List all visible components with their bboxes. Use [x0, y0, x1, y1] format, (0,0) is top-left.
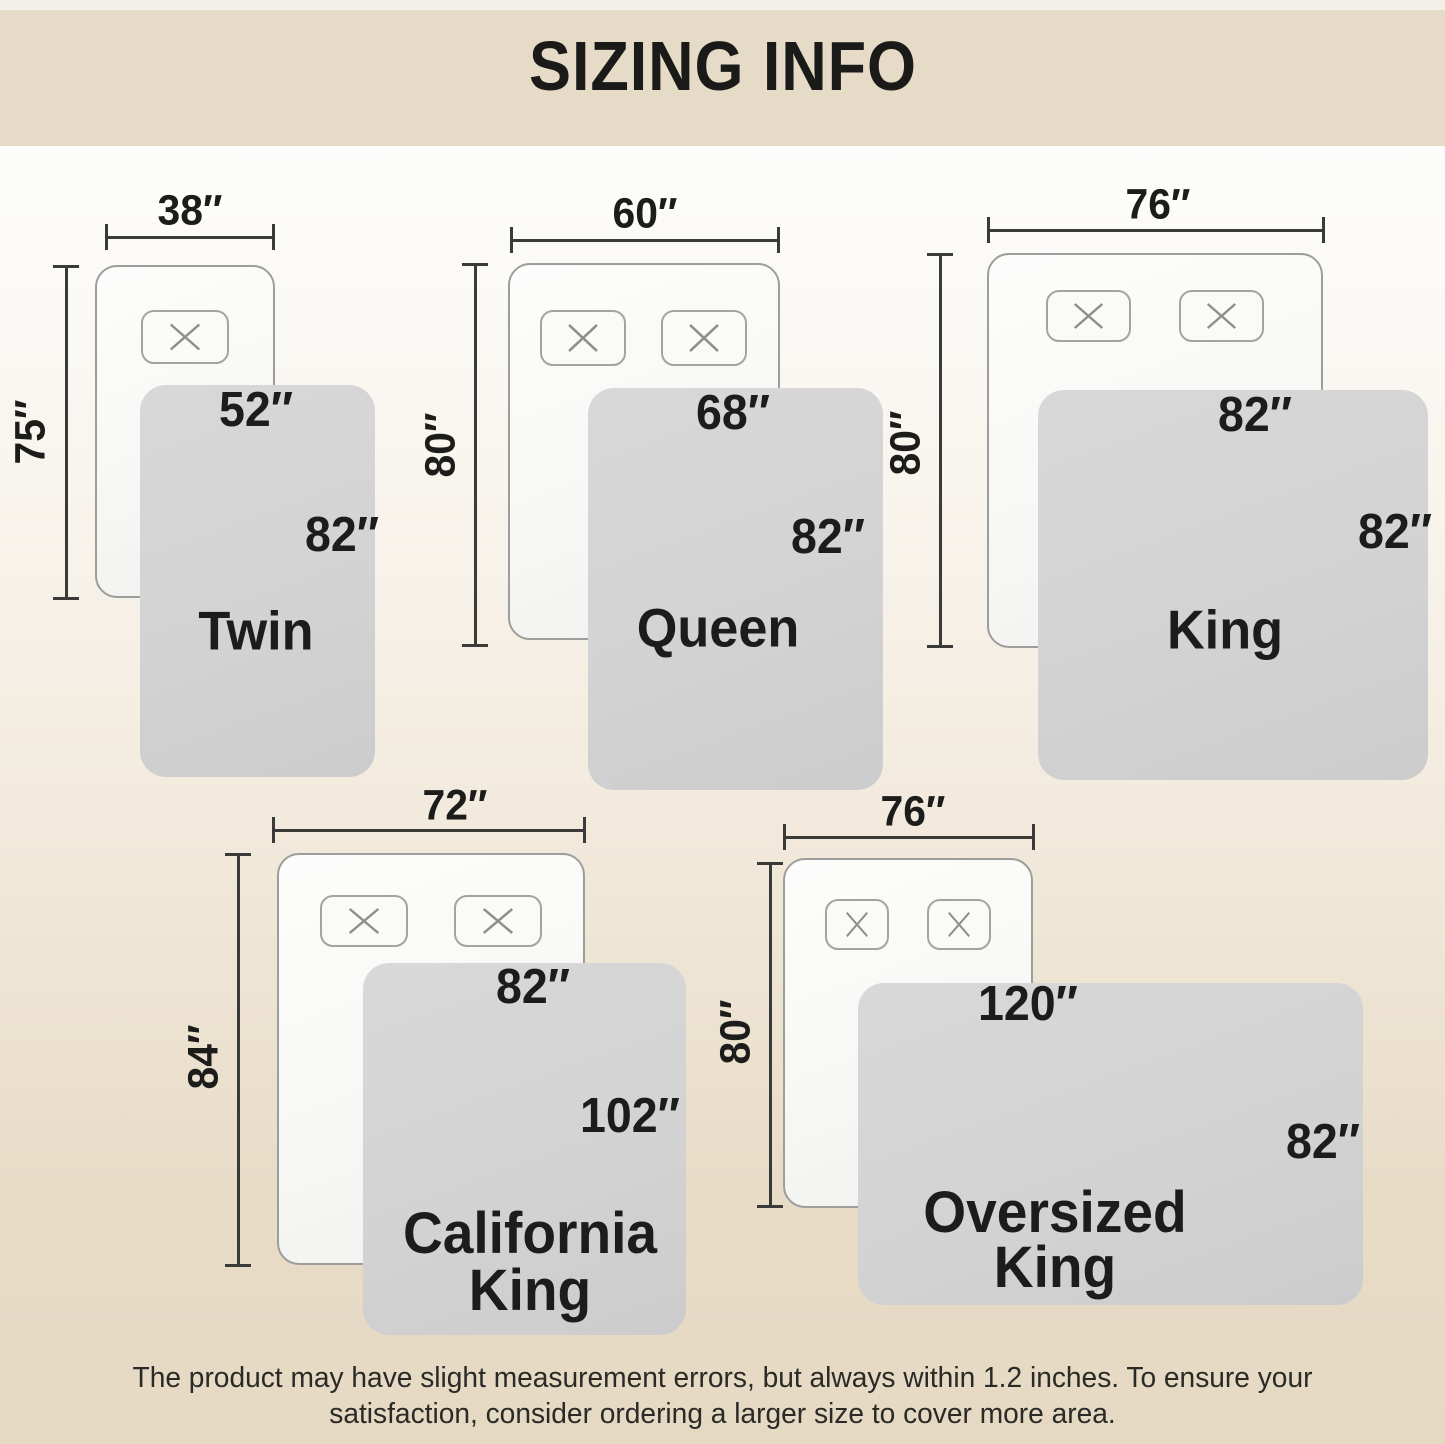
bed-width-dimension-line [987, 217, 1325, 243]
bed-width-dimension-line [510, 227, 780, 253]
pillow-cross-icon [827, 901, 887, 948]
bed-length-dimension-line [757, 862, 783, 1208]
bed-length-label: 75″ [7, 399, 56, 464]
pillow-cross-icon [456, 897, 540, 945]
sizing-infographic: SIZING INFO 52″82″Twin38″75″68″82″Queen6… [0, 0, 1445, 1444]
bed-length-label: 80″ [882, 410, 931, 475]
pillow-cross-icon [143, 312, 227, 362]
bed-width-dimension-line [105, 224, 275, 250]
blanket-length-label: 82″ [1286, 1114, 1360, 1170]
blanket-width-label: 52″ [219, 382, 293, 438]
size-name-label: King [1102, 603, 1349, 658]
pillow-icon [454, 895, 542, 947]
bed-outline [277, 853, 585, 1265]
blanket-shape [1038, 390, 1428, 780]
pillow-icon [320, 895, 408, 947]
blanket-width-label: 120″ [978, 976, 1078, 1032]
bed-width-label: 38″ [157, 187, 222, 236]
size-name-label: Queen [585, 601, 851, 656]
pillow-icon [825, 899, 889, 950]
footer-note: The product may have slight measurement … [0, 1360, 1445, 1432]
bed-width-dimension-line [783, 824, 1035, 850]
diagram-king: 82″82″King76″80″ [0, 0, 1445, 1444]
footer-line-1: The product may have slight measurement … [22, 1360, 1424, 1396]
blanket-length-label: 82″ [305, 507, 379, 563]
bed-length-dimension-line [462, 263, 488, 647]
blanket-shape [363, 963, 686, 1335]
blanket-width-label: 82″ [496, 959, 570, 1015]
pillow-cross-icon [1181, 292, 1262, 340]
pillow-icon [1179, 290, 1264, 342]
bed-outline [95, 265, 275, 598]
bed-width-label: 76″ [880, 788, 945, 837]
bed-length-dimension-line [53, 265, 79, 600]
bed-outline [987, 253, 1323, 648]
pillow-icon [540, 310, 626, 366]
bed-length-dimension-line [927, 253, 953, 648]
blanket-length-label: 82″ [791, 509, 865, 565]
blanket-shape [140, 385, 375, 777]
size-name-label: California King [359, 1205, 701, 1319]
bed-width-label: 72″ [422, 782, 487, 831]
blanket-shape [858, 983, 1363, 1305]
pillow-cross-icon [1048, 292, 1129, 340]
pillow-cross-icon [663, 312, 745, 364]
bed-width-label: 76″ [1125, 181, 1190, 230]
bed-length-label: 80″ [417, 412, 466, 477]
blanket-width-label: 82″ [1218, 387, 1292, 443]
blanket-length-label: 82″ [1358, 504, 1432, 560]
pillow-cross-icon [542, 312, 624, 364]
diagram-oversized-king: 120″82″Oversized King76″80″ [0, 0, 1445, 1444]
diagram-queen: 68″82″Queen60″80″ [0, 0, 1445, 1444]
bed-outline [783, 858, 1033, 1208]
pillow-cross-icon [322, 897, 406, 945]
pillow-icon [927, 899, 991, 950]
bed-length-dimension-line [225, 853, 251, 1267]
bed-width-dimension-line [272, 817, 586, 843]
bed-outline [508, 263, 780, 640]
blanket-shape [588, 388, 883, 790]
size-name-label: Twin [142, 604, 370, 659]
blanket-length-label: 102″ [580, 1088, 680, 1144]
size-name-label: Oversized King [884, 1185, 1226, 1295]
pillow-icon [1046, 290, 1131, 342]
diagrams-layer: 52″82″Twin38″75″68″82″Queen60″80″82″82″K… [0, 0, 1445, 1444]
diagram-california-king: 82″102″California King72″84″ [0, 0, 1445, 1444]
diagram-twin: 52″82″Twin38″75″ [0, 0, 1445, 1444]
pillow-cross-icon [929, 901, 989, 948]
blanket-width-label: 68″ [696, 385, 770, 441]
pillow-icon [661, 310, 747, 366]
bed-length-label: 84″ [180, 1024, 229, 1089]
bed-width-label: 60″ [612, 190, 677, 239]
pillow-icon [141, 310, 229, 364]
footer-line-2: satisfaction, consider ordering a larger… [22, 1396, 1424, 1432]
bed-length-label: 80″ [712, 999, 761, 1064]
